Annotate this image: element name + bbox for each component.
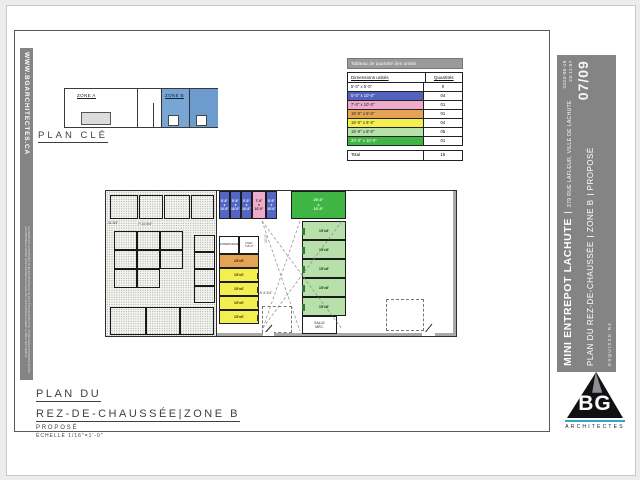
dimension-label: 7'-11 3/4" — [138, 222, 152, 226]
logo-name: ARCHITECTES — [563, 424, 627, 430]
table-row: 5'-0" x 5'-0" 0 — [348, 83, 462, 91]
existing-room — [180, 307, 214, 335]
table-row: 5'-0" x 10'-0" 04 — [348, 91, 462, 100]
table-row: 20'-0" x 10'-0" 01 — [348, 136, 462, 145]
total-label-cell: Total — [348, 151, 424, 160]
dimension-cell: 20'-0" x 10'-0" — [348, 137, 424, 145]
table-row: 15'-0" x 5'-0" 01 — [348, 109, 462, 118]
logo-initials: BG — [567, 392, 623, 416]
sheet-status-sidebar: PROPOSÉ — [586, 147, 595, 190]
door-opening — [263, 332, 274, 336]
door-marker — [257, 315, 259, 321]
revision-label: ESQUISSE R4 — [607, 100, 612, 366]
key-plan-wall — [153, 103, 154, 127]
sheet-title-line1: PLAN DU — [36, 388, 101, 402]
dimension-cell: 7'-0" x 10'-0" — [348, 101, 424, 109]
quantity-cell: 01 — [424, 101, 462, 109]
left-edge-banner: WWW.BGARCHITECTES.CA CE DESSIN EST LA PR… — [20, 48, 33, 380]
quantity-cell: 01 — [424, 110, 462, 118]
dimension-cell: 15'-0" x 6'-0" — [348, 119, 424, 127]
logo-accent-line — [565, 420, 625, 422]
drawing-sheet: WWW.BGARCHITECTES.CA CE DESSIN EST LA PR… — [0, 0, 640, 480]
quantity-cell: 0 — [424, 83, 462, 91]
unit-15x5: 15'x5' — [219, 254, 259, 268]
room-cvac: CVAC 7'x5'-0" — [239, 236, 259, 254]
unit-15x8-3: 15'x8' — [302, 259, 346, 278]
existing-room — [194, 286, 215, 303]
existing-room — [160, 250, 183, 269]
key-plan-zone-b-label: ZONE B — [165, 93, 184, 99]
unit-5x10-4: 5'-0" x 10'-0" — [266, 191, 277, 219]
unit-5x10-1: 5'-0" x 10'-0" — [219, 191, 230, 219]
unit-7x10: 7'-0" x 10'-0" — [252, 191, 266, 219]
sheet-status: PROPOSÉ — [36, 425, 240, 431]
existing-room — [146, 307, 180, 335]
sidebar-title-strip: MINI ENTREPOT LACHUTE 379 RUE LAFLEUR, V… — [557, 55, 616, 372]
dashed-vestibule — [262, 306, 292, 333]
existing-room — [114, 231, 137, 250]
unit-15x6-1: 15'x6' — [219, 268, 259, 282]
unit-15x6-2: 15'x6' — [219, 282, 259, 296]
table-body: 5'-0" x 5'-0" 0 5'-0" x 10'-0" 04 7'-0" … — [347, 83, 463, 146]
table-title: Tableau de quantité des unités — [347, 58, 463, 69]
dashed-future-room — [386, 299, 424, 331]
sheet-scale: ÉCHELLE 1/16"=1'-0" — [36, 433, 240, 439]
dimension-label: 19'-5 3/4" — [258, 291, 272, 295]
table-row: 15'-0" x 6'-0" 04 — [348, 118, 462, 127]
existing-room — [114, 250, 137, 269]
door-opening — [422, 332, 435, 336]
exterior-wall — [453, 191, 456, 336]
door-marker — [302, 247, 305, 254]
unit-quantities-table: Tableau de quantité des unités Dimension… — [347, 58, 463, 161]
dimension-cell: 5'-0" x 10'-0" — [348, 92, 424, 100]
dimension-cell: 5'-0" x 5'-0" — [348, 83, 424, 91]
dimension-label: 10'-0" — [264, 234, 268, 243]
quantity-cell: 04 — [424, 92, 462, 100]
column-header-quantities: Quantités — [426, 73, 462, 82]
room-salle-mec: SALLE MÉC. — [302, 316, 337, 334]
separator — [587, 236, 594, 237]
total-value-cell: 16 — [424, 151, 462, 160]
table-total-row: Total 16 — [347, 150, 463, 161]
table-row: 7'-0" x 10'-0" 01 — [348, 100, 462, 109]
sidebar-titles: MINI ENTREPOT LACHUTE 379 RUE LAFLEUR, V… — [562, 100, 612, 366]
logo-triangle: BG — [567, 372, 623, 418]
key-plan-door — [196, 115, 207, 126]
table-header-row: Dimensions unités Quantités — [347, 72, 463, 83]
table-row: 15'-0" x 8'-0" 05 — [348, 127, 462, 136]
sheet-zone: ZONE B — [586, 199, 595, 232]
separator — [587, 194, 594, 195]
existing-room — [114, 269, 137, 288]
project-address: 379 RUE LAFLEUR, VILLE DE LACHUTE — [567, 100, 573, 207]
unit-15x8-2: 15'x8' — [302, 240, 346, 259]
dimension-cell: 15'-0" x 8'-0" — [348, 128, 424, 136]
logo-facet — [592, 372, 602, 393]
door-marker — [302, 228, 305, 235]
existing-room — [110, 195, 138, 219]
key-plan-dock — [81, 112, 111, 125]
time-label: 23:11:57 — [568, 60, 574, 82]
key-plan-wall — [137, 89, 138, 127]
floor-plan: 11 3/4" 7'-11 3/4" 5'-0" x 10'-0" 5'-0" … — [105, 190, 457, 337]
key-plan: ZONE A ZONE B — [64, 88, 218, 128]
key-plan-title: PLAN CLÉ — [38, 130, 108, 143]
unit-15x6-4: 15'x6' — [219, 310, 259, 324]
existing-room — [137, 231, 160, 250]
page-number: 07/09 — [575, 60, 591, 100]
project-title: MINI ENTREPOT LACHUTE — [562, 218, 574, 366]
door-marker — [302, 285, 305, 292]
existing-room — [164, 195, 190, 219]
existing-room — [137, 269, 160, 288]
unit-15x6-3: 15'x6' — [219, 296, 259, 310]
existing-hatched-area: 11 3/4" 7'-11 3/4" — [106, 191, 217, 336]
existing-room — [160, 231, 183, 250]
existing-room — [139, 195, 163, 219]
fine-print: CE DESSIN EST LA PROPRIÉTÉ DE BG ARCHITE… — [24, 226, 30, 376]
unit-15x8-5: 15'x8' — [302, 297, 346, 316]
existing-room — [194, 269, 215, 286]
website-vertical-text: WWW.BGARCHITECTES.CA — [23, 52, 30, 155]
quantity-cell: 05 — [424, 128, 462, 136]
key-plan-zone-a-label: ZONE A — [77, 93, 96, 99]
unit-5x10-2: 5'-0" x 10'-0" — [230, 191, 241, 219]
unit-15x8-1: 15'x8' — [302, 221, 346, 240]
unit-15x8-4: 15'x8' — [302, 278, 346, 297]
existing-room — [194, 252, 215, 269]
room-entreposage: ENTREPOSAGE — [219, 236, 239, 254]
existing-room — [110, 307, 146, 335]
bg-logo: BG ARCHITECTES — [563, 372, 627, 430]
existing-room — [194, 235, 215, 252]
quantity-cell: 04 — [424, 119, 462, 127]
quantity-cell: 01 — [424, 137, 462, 145]
dimension-label: 11 3/4" — [108, 221, 118, 225]
unit-20x10: 20'-0" x 10'-0" — [291, 191, 346, 219]
title-block: PLAN DU REZ-DE-CHAUSSÉE|ZONE B PROPOSÉ É… — [36, 384, 240, 439]
door-marker — [257, 273, 259, 279]
sheet-title-line2: REZ-DE-CHAUSSÉE|ZONE B — [36, 408, 240, 422]
dimension-cell: 15'-0" x 5'-0" — [348, 110, 424, 118]
separator — [564, 212, 572, 213]
sheet-subtitle: PLAN DU REZ-DE-CHAUSSÉE — [586, 241, 595, 366]
door-marker — [257, 301, 259, 307]
door-marker — [302, 304, 305, 311]
existing-room — [191, 195, 214, 219]
sidebar-date-block: 2023-06-19 23:11:57 07/09 — [562, 60, 612, 100]
door-marker — [302, 266, 305, 273]
existing-room — [137, 250, 160, 269]
unit-5x10-3: 5'-0" x 10'-0" — [241, 191, 252, 219]
column-header-dimensions: Dimensions unités — [348, 73, 426, 82]
key-plan-door — [168, 115, 179, 126]
